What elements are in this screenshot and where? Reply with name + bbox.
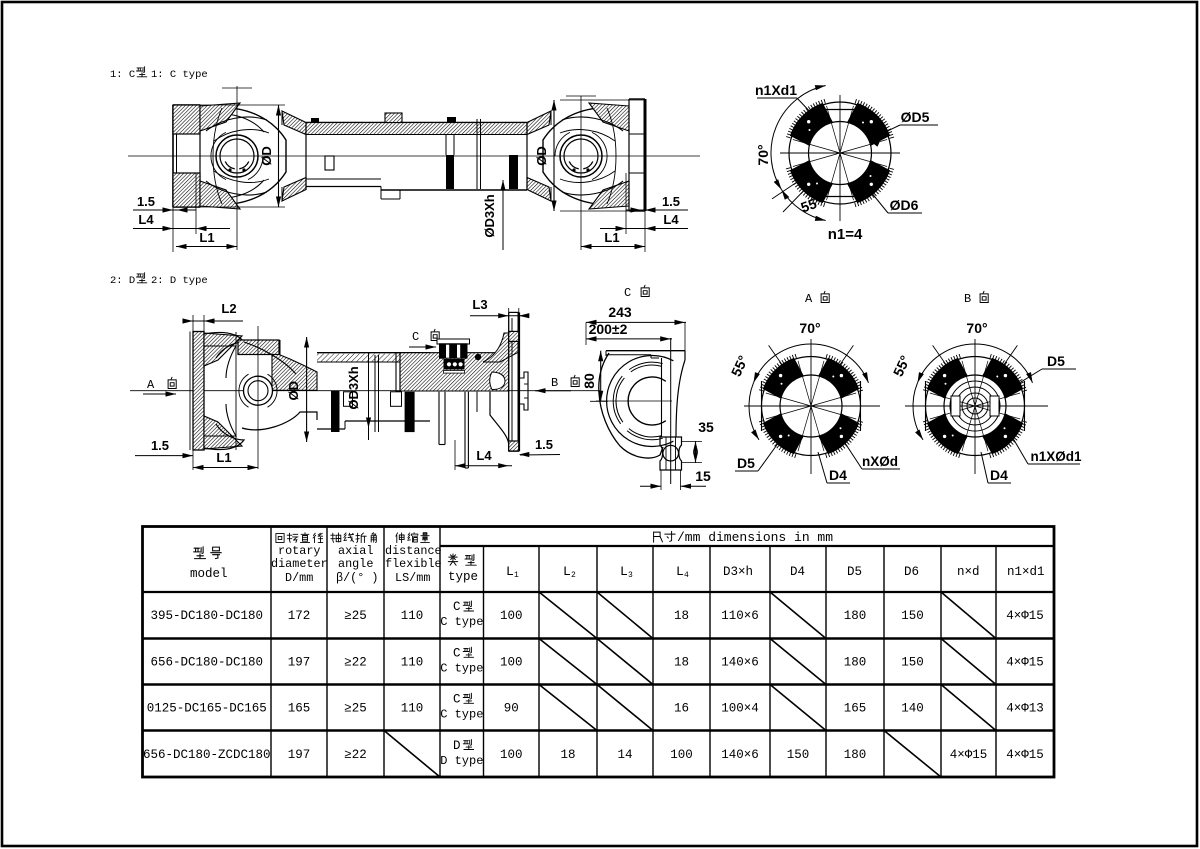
svg-text:B: B <box>964 292 971 306</box>
svg-text:L: L <box>563 564 571 579</box>
svg-text:n1×d1: n1×d1 <box>1007 565 1045 579</box>
svg-text:110: 110 <box>401 656 424 670</box>
svg-text:4×Φ15: 4×Φ15 <box>1006 748 1044 762</box>
svg-text:2: D type: 2: D type <box>151 275 208 287</box>
svg-text:C: C <box>453 600 461 614</box>
svg-text:n1Xd1: n1Xd1 <box>755 82 797 98</box>
svg-text:110: 110 <box>401 702 424 716</box>
svg-text:L1: L1 <box>216 450 231 465</box>
svg-text:140×6: 140×6 <box>721 748 759 762</box>
svg-text:/mm dimensions in mm: /mm dimensions in mm <box>677 530 833 545</box>
svg-text:1.5: 1.5 <box>137 194 155 209</box>
svg-text:L1: L1 <box>604 230 619 245</box>
svg-text:180: 180 <box>844 656 867 670</box>
svg-text:n1XØd1: n1XØd1 <box>1030 449 1082 464</box>
svg-text:L4: L4 <box>663 212 679 227</box>
svg-text:110: 110 <box>401 609 424 623</box>
svg-text:L1: L1 <box>199 230 214 245</box>
svg-text:≥22: ≥22 <box>344 656 367 670</box>
svg-text:L3: L3 <box>472 297 487 312</box>
svg-text:18: 18 <box>674 656 689 670</box>
svg-text:165: 165 <box>844 702 867 716</box>
svg-text:L4: L4 <box>138 212 154 227</box>
svg-text:D: D <box>453 739 461 753</box>
svg-text:4×Φ13: 4×Φ13 <box>1006 702 1044 716</box>
svg-text:14: 14 <box>617 748 632 762</box>
svg-text:197: 197 <box>288 656 311 670</box>
svg-text:L: L <box>620 564 628 579</box>
svg-text:ØD5: ØD5 <box>901 109 930 125</box>
svg-text:2: D: 2: D <box>110 275 135 287</box>
svg-text:243: 243 <box>608 304 632 320</box>
svg-text:L: L <box>506 564 514 579</box>
svg-text:165: 165 <box>288 702 311 716</box>
svg-text:15: 15 <box>695 468 711 484</box>
svg-text:nXØd: nXØd <box>862 454 898 469</box>
svg-text:ØD: ØD <box>259 146 274 166</box>
svg-text:150: 150 <box>901 609 924 623</box>
svg-text:C: C <box>453 693 461 707</box>
svg-text:D6: D6 <box>904 565 919 579</box>
svg-text:ØD: ØD <box>286 381 301 401</box>
svg-text:flexible: flexible <box>385 557 442 571</box>
svg-text:D5: D5 <box>847 565 862 579</box>
svg-text:150: 150 <box>787 748 810 762</box>
svg-text:18: 18 <box>674 609 689 623</box>
svg-text:C: C <box>453 647 461 661</box>
svg-text:LS/mm: LS/mm <box>395 571 430 585</box>
svg-text:100×4: 100×4 <box>721 702 759 716</box>
svg-text:≥22: ≥22 <box>344 748 367 762</box>
svg-text:D3×h: D3×h <box>723 565 753 579</box>
svg-text:B: B <box>551 376 558 390</box>
svg-text:18: 18 <box>560 748 575 762</box>
svg-text:C: C <box>412 330 419 344</box>
svg-text:D/mm: D/mm <box>285 571 313 585</box>
svg-text:80: 80 <box>581 373 597 389</box>
svg-text:140: 140 <box>901 702 924 716</box>
svg-text:100: 100 <box>670 748 693 762</box>
svg-text:D5: D5 <box>1047 353 1065 369</box>
svg-text:A: A <box>805 292 813 306</box>
svg-text:1: C: 1: C <box>110 69 135 81</box>
svg-text:angle: angle <box>338 557 373 571</box>
svg-text:16: 16 <box>674 702 689 716</box>
svg-text:1.5: 1.5 <box>151 438 169 453</box>
svg-text:100: 100 <box>500 656 523 670</box>
svg-text:L4: L4 <box>476 448 492 463</box>
svg-text:C type: C type <box>440 615 483 629</box>
svg-text:ØD3Xh: ØD3Xh <box>346 366 361 409</box>
svg-text:70°: 70° <box>966 320 987 336</box>
svg-text:656-DC180-ZCDC180: 656-DC180-ZCDC180 <box>143 748 271 762</box>
svg-text:A: A <box>147 378 155 392</box>
svg-text:β/(° ): β/(° ) <box>336 571 378 585</box>
svg-text:2: 2 <box>571 571 576 580</box>
svg-text:D4: D4 <box>829 467 847 483</box>
svg-text:C type: C type <box>440 662 483 676</box>
svg-text:D4: D4 <box>990 467 1008 483</box>
svg-text:150: 150 <box>901 656 924 670</box>
svg-text:172: 172 <box>288 609 311 623</box>
svg-text:distance: distance <box>385 544 442 558</box>
svg-text:n1=4: n1=4 <box>828 226 863 243</box>
svg-text:35: 35 <box>698 419 714 435</box>
svg-text:1.5: 1.5 <box>535 437 553 452</box>
svg-text:656-DC180-DC180: 656-DC180-DC180 <box>151 656 264 670</box>
svg-text:4×Φ15: 4×Φ15 <box>950 748 988 762</box>
svg-text:200±2: 200±2 <box>589 321 628 337</box>
svg-text:70°: 70° <box>755 144 771 165</box>
svg-text:D5: D5 <box>737 455 755 471</box>
svg-text:≥25: ≥25 <box>344 702 367 716</box>
svg-text:100: 100 <box>500 748 523 762</box>
svg-text:90: 90 <box>504 702 519 716</box>
svg-text:3: 3 <box>628 571 633 580</box>
svg-text:4×Φ15: 4×Φ15 <box>1006 609 1044 623</box>
svg-text:n×d: n×d <box>957 565 980 579</box>
svg-text:D4: D4 <box>790 565 805 579</box>
svg-text:1: 1 <box>514 571 519 580</box>
svg-text:model: model <box>190 567 228 581</box>
svg-text:ØD6: ØD6 <box>890 197 919 213</box>
svg-text:395-DC180-DC180: 395-DC180-DC180 <box>151 609 264 623</box>
svg-text:ØD: ØD <box>534 146 549 166</box>
svg-text:rotary: rotary <box>278 544 320 558</box>
svg-text:70°: 70° <box>799 320 820 336</box>
svg-text:140×6: 140×6 <box>721 656 759 670</box>
svg-text:4: 4 <box>684 571 689 580</box>
svg-text:axial: axial <box>338 544 373 558</box>
svg-text:1.5: 1.5 <box>662 194 680 209</box>
svg-text:1: C type: 1: C type <box>151 69 208 81</box>
svg-text:100: 100 <box>500 609 523 623</box>
svg-text:180: 180 <box>844 748 867 762</box>
svg-text:C: C <box>624 286 631 300</box>
svg-text:4×Φ15: 4×Φ15 <box>1006 656 1044 670</box>
svg-text:0125-DC165-DC165: 0125-DC165-DC165 <box>147 702 267 716</box>
svg-text:L: L <box>676 564 684 579</box>
svg-text:diameter: diameter <box>271 557 328 571</box>
svg-text:110×6: 110×6 <box>721 609 759 623</box>
svg-text:≥25: ≥25 <box>344 609 367 623</box>
svg-text:type: type <box>448 570 478 584</box>
svg-text:180: 180 <box>844 609 867 623</box>
svg-text:L2: L2 <box>221 301 236 316</box>
svg-text:D type: D type <box>440 754 483 768</box>
svg-text:C type: C type <box>440 708 483 722</box>
svg-text:ØD3Xh: ØD3Xh <box>482 194 497 237</box>
svg-text:197: 197 <box>288 748 311 762</box>
